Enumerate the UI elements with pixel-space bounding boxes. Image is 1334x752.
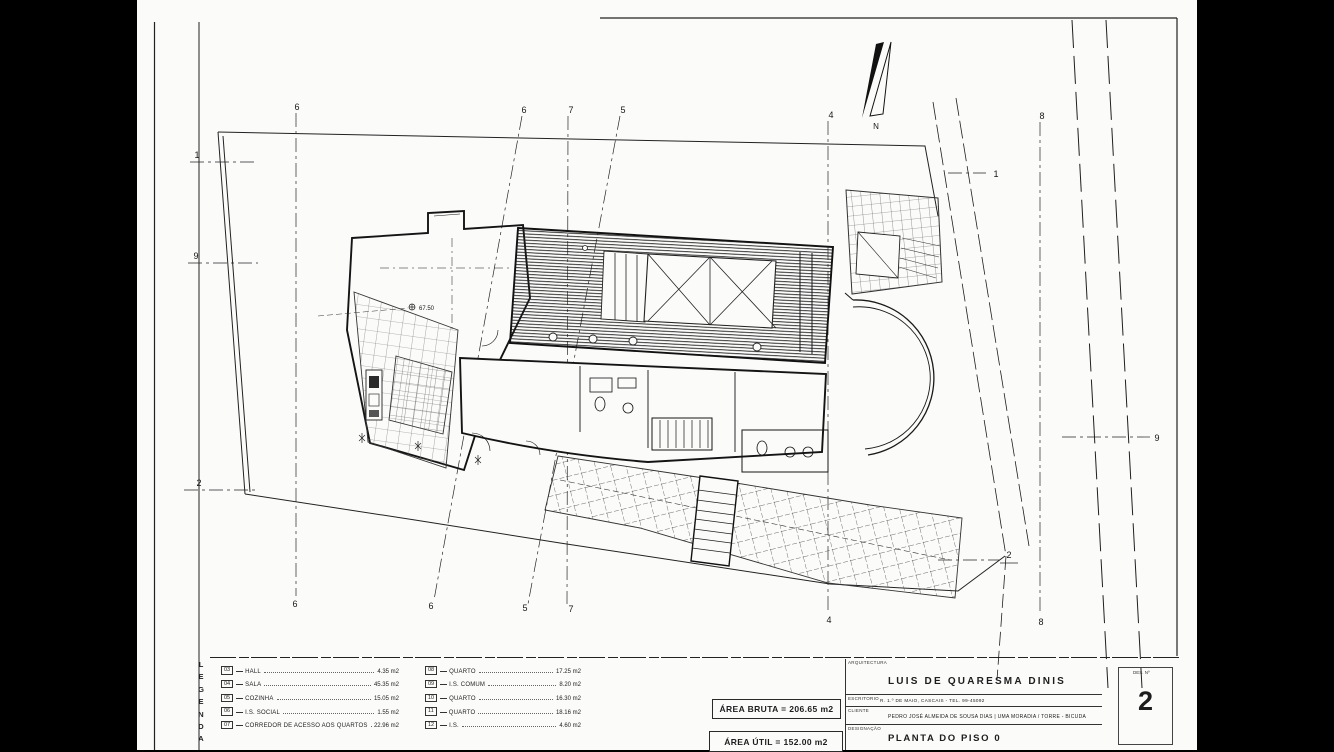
garden-mark-icon [475,455,481,465]
legend-title-letter: N [194,709,208,721]
grid-label: 4 [828,110,833,120]
area-bruta-box: ÁREA BRUTA = 206.65 m2 [712,699,841,719]
legend-item: 05COZINHA15.05 m2 [221,688,399,702]
legend-item-number: 11 [425,707,437,716]
wood-deck [510,228,833,363]
road-boundary-lines [933,20,1142,688]
legend-item-number: 08 [425,666,437,675]
section-label: ARQUITECTURA [848,660,887,665]
sheet-number-box: DES. Nº 2 [1118,667,1173,745]
legend-dash [236,671,243,672]
grid-label: 6 [521,105,526,115]
legend-item-area: 4.60 m2 [559,723,581,729]
grid-label: 9 [193,251,198,261]
legend-item-number: 07 [221,721,233,730]
dotted-leader [479,699,553,700]
grid-label: 1 [194,150,199,160]
dotted-leader [488,685,556,686]
grid-label: 6 [428,601,433,611]
legend-dash [440,671,447,672]
legend-item: 06I.S. SOCIAL1.55 m2 [221,702,399,716]
grid-label: 8 [1039,111,1044,121]
grid-label: 4 [826,615,831,625]
legend-dash [236,684,243,685]
grid-label: 8 [1038,617,1043,627]
sheet-number-label: DES. Nº [1133,670,1150,675]
legend-item-number: 03 [221,666,233,675]
legend-column-right: 08QUARTO17.25 m209I.S. COMUM8.20 m210QUA… [425,661,581,729]
dotted-leader [478,713,553,714]
legend-dash [440,725,447,726]
grid-label: 2 [1006,550,1011,560]
dotted-leader [479,672,553,673]
legend-item-label: CORREDOR DE ACESSO AOS QUARTOS [245,723,367,729]
legend-item: 12I.S.4.60 m2 [425,716,581,730]
sheet-number: 2 [1119,686,1172,717]
legend-dash [236,725,243,726]
tiled-floor-area [354,292,458,468]
legend-item: 03HALL4.35 m2 [221,661,399,675]
grid-label: 5 [522,603,527,613]
scanned-drawing-page: { "sheet": { "legend_title": "LEGENDA", … [0,0,1334,750]
legend-item: 09I.S. COMUM8.20 m2 [425,675,581,689]
legend-item-number: 06 [221,707,233,716]
legend-item-number: 05 [221,694,233,703]
designation-label: DESIGNAÇÃO [848,726,881,731]
legend-item: 07CORREDOR DE ACESSO AOS QUARTOS22.96 m2 [221,716,399,730]
legend-item-number: 10 [425,694,437,703]
curved-wall [845,293,934,455]
floor-plan-drawing: 6 6 7 5 4 8 6 6 5 7 4 8 1 9 2 1 9 2 N [0,0,1334,750]
spot-level-label: 67.50 [419,306,435,312]
legend-item: 11QUARTO18.16 m2 [425,702,581,716]
title-block: ARQUITECTURA LUIS DE QUARESMA DINIS ESCR… [845,659,1177,750]
grid-label: 7 [568,604,573,614]
dotted-leader [264,672,374,673]
client-label: CLIENTE [848,708,869,713]
legend-item-number: 12 [425,721,437,730]
north-arrow-icon: N [862,42,891,131]
grid-label: 7 [568,105,573,115]
dotted-leader [277,699,371,700]
garden-mark-icon [359,433,365,443]
legend-item-number: 09 [425,680,437,689]
legend-title-letter: E [194,696,208,708]
grid-label: 6 [294,102,299,112]
north-label: N [873,122,879,131]
area-util-box: ÁREA ÚTIL = 152.00 m2 [709,731,843,752]
legend-dash [440,712,447,713]
architect-name: LUIS DE QUARESMA DINIS [888,676,1066,687]
dotted-leader [462,726,556,727]
dotted-leader [264,685,371,686]
grid-label: 6 [292,599,297,609]
client-name: PEDRO JOSÉ ALMEIDA DE SOUSA DIAS | UMA M… [888,714,1086,720]
legend-title-letter: D [194,721,208,733]
legend-title-letter: L [194,659,208,671]
dotted-leader [283,713,374,714]
legend-title: LEGENDA [194,659,208,746]
drawing-title: PLANTA DO PISO 0 [888,733,1001,744]
office-label: ESCRITORIO [848,696,879,701]
office-address: R. 1.º DE MAIO, CASCAIS - TEL. 99-45092 [880,698,985,703]
legend-dash [440,684,447,685]
legend-item: 04SALA45.35 m2 [221,675,399,689]
legend-title-letter: E [194,671,208,683]
grid-label: 5 [620,105,625,115]
grid-labels: 6 6 7 5 4 8 6 6 5 7 4 8 1 9 2 1 9 2 [193,102,1159,627]
legend-item: 10QUARTO16.30 m2 [425,688,581,702]
grid-lines [184,113,1150,614]
legend-item-label: I.S. [449,723,459,729]
legend-dash [236,712,243,713]
walkway-ramp [545,456,962,598]
grid-label: 2 [196,478,201,488]
legend-column-left: 03HALL4.35 m204SALA45.35 m205COZINHA15.0… [221,661,399,729]
central-rooms [460,358,828,472]
legend-dash [236,698,243,699]
grid-label: 1 [993,169,998,179]
legend-item: 08QUARTO17.25 m2 [425,661,581,675]
legend-dash [440,698,447,699]
legend-title-letter: G [194,684,208,696]
legend-item-area: 22.96 m2 [374,723,399,729]
legend-item-number: 04 [221,680,233,689]
grid-label: 9 [1154,433,1159,443]
legend-title-letter: A [194,733,208,745]
upper-patio [846,190,942,294]
